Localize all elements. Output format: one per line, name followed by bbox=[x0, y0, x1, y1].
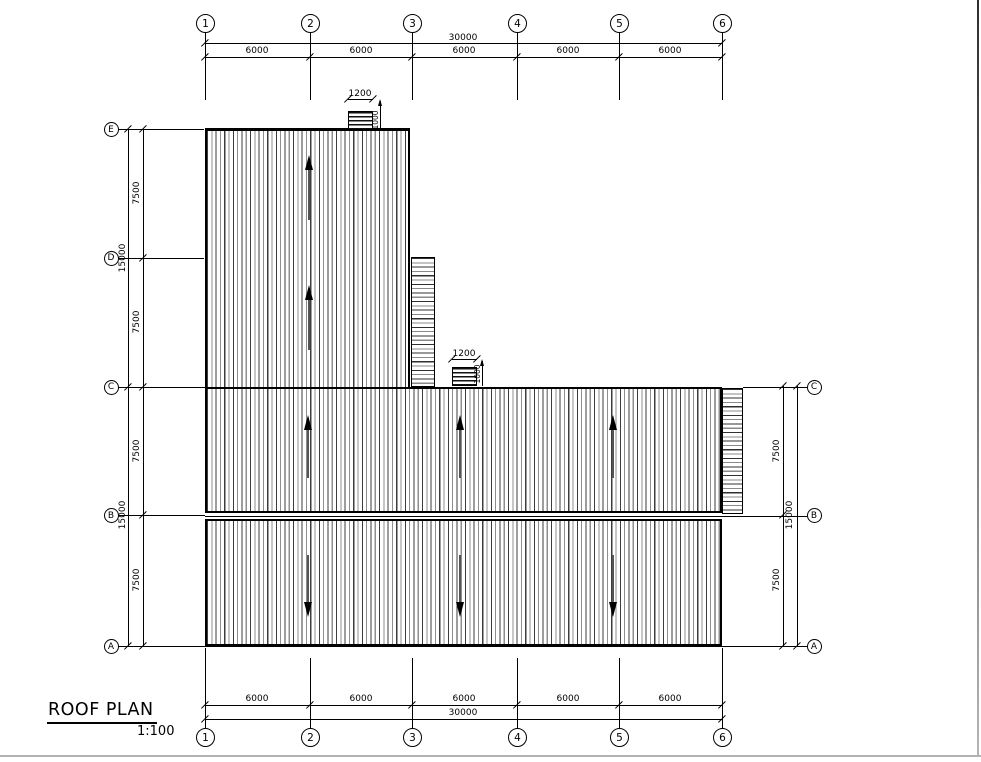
grid-label: 3 bbox=[409, 18, 416, 30]
grid-bubble-column: 3 bbox=[403, 728, 422, 747]
dim-text: 15000 bbox=[785, 501, 795, 530]
grid-bubble-column: 2 bbox=[301, 14, 320, 33]
dimension-line bbox=[205, 43, 722, 44]
slope-arrow-up bbox=[304, 285, 314, 350]
vent-dim-height: 1000 bbox=[473, 364, 483, 383]
ridge-line bbox=[205, 516, 722, 517]
dim-text: 6000 bbox=[453, 46, 476, 56]
dimension-line bbox=[128, 129, 129, 647]
grid-line bbox=[118, 258, 204, 259]
grid-line bbox=[118, 646, 205, 647]
dim-text: 6000 bbox=[557, 46, 580, 56]
grid-label: B bbox=[108, 511, 114, 521]
grid-bubble-row: C bbox=[104, 380, 119, 395]
dim-text: 6000 bbox=[350, 46, 373, 56]
grid-line bbox=[517, 658, 518, 728]
grid-label: 6 bbox=[719, 732, 726, 744]
grid-line bbox=[310, 658, 311, 728]
grid-line bbox=[118, 129, 204, 130]
slope-arrow-up bbox=[304, 155, 314, 220]
window-edge bbox=[0, 755, 981, 757]
dimension-line bbox=[797, 386, 798, 646]
dim-text: 6000 bbox=[659, 46, 682, 56]
roof-plan-drawing: 1200 1000 1200 1000 30000 6000 6000 6000… bbox=[0, 0, 981, 762]
dim-text: 6000 bbox=[350, 694, 373, 704]
grid-bubble-column: 1 bbox=[196, 14, 215, 33]
dim-text: 15000 bbox=[118, 501, 128, 530]
grid-label: A bbox=[108, 642, 114, 652]
grid-label: D bbox=[108, 253, 115, 263]
vent-dim-height: 1000 bbox=[371, 110, 381, 129]
dim-text: 6000 bbox=[453, 694, 476, 704]
grid-label: 2 bbox=[307, 18, 314, 30]
grid-bubble-column: 1 bbox=[196, 728, 215, 747]
dim-text: 7500 bbox=[132, 182, 142, 205]
grid-bubble-row: B bbox=[807, 508, 822, 523]
slope-arrow-down bbox=[608, 555, 618, 617]
vent-dim-width: 1200 bbox=[453, 349, 476, 359]
grid-label: B bbox=[811, 511, 817, 521]
dimension-line bbox=[205, 705, 722, 706]
dim-text: 7500 bbox=[772, 440, 782, 463]
dim-text: 7500 bbox=[132, 569, 142, 592]
dim-text: 6000 bbox=[246, 46, 269, 56]
grid-label: C bbox=[811, 382, 817, 392]
grid-label: 6 bbox=[719, 18, 726, 30]
grid-bubble-row: C bbox=[807, 380, 822, 395]
grid-bubble-column: 2 bbox=[301, 728, 320, 747]
grid-bubble-column: 5 bbox=[610, 14, 629, 33]
upper-roof-side-canopy bbox=[411, 257, 435, 387]
grid-label: 5 bbox=[616, 732, 623, 744]
dimension-line bbox=[783, 386, 784, 646]
grid-bubble-column: 5 bbox=[610, 728, 629, 747]
slope-arrow-down bbox=[303, 555, 313, 617]
dimension-line bbox=[205, 719, 722, 720]
grid-label: 5 bbox=[616, 18, 623, 30]
window-edge bbox=[977, 0, 979, 757]
grid-label: 3 bbox=[409, 732, 416, 744]
grid-bubble-column: 3 bbox=[403, 14, 422, 33]
grid-label: 2 bbox=[307, 732, 314, 744]
grid-bubble-column: 6 bbox=[713, 728, 732, 747]
dim-text: 6000 bbox=[659, 694, 682, 704]
grid-bubble-column: 4 bbox=[508, 14, 527, 33]
dim-text: 15000 bbox=[118, 244, 128, 273]
drawing-scale: 1:100 bbox=[137, 724, 174, 739]
dim-text: 30000 bbox=[449, 33, 478, 43]
dimension-line bbox=[205, 57, 722, 58]
grid-label: C bbox=[108, 382, 114, 392]
dim-text: 30000 bbox=[449, 708, 478, 718]
dimension-line bbox=[143, 129, 144, 647]
grid-label: 1 bbox=[202, 732, 209, 744]
dim-text: 6000 bbox=[557, 694, 580, 704]
grid-bubble-row: D bbox=[104, 251, 119, 266]
drawing-title: ROOF PLAN bbox=[47, 700, 157, 724]
lower-roof-side-canopy bbox=[722, 388, 743, 514]
grid-line bbox=[118, 387, 205, 388]
grid-bubble-column: 4 bbox=[508, 728, 527, 747]
dim-text: 7500 bbox=[772, 569, 782, 592]
dim-text: 6000 bbox=[246, 694, 269, 704]
grid-label: 4 bbox=[514, 18, 521, 30]
grid-bubble-row: B bbox=[104, 508, 119, 523]
dim-text: 7500 bbox=[132, 311, 142, 334]
grid-line bbox=[412, 658, 413, 728]
slope-arrow-up bbox=[455, 415, 465, 478]
slope-arrow-down bbox=[455, 555, 465, 617]
slope-arrow-up bbox=[303, 415, 313, 478]
vent-dim-width: 1200 bbox=[349, 89, 372, 99]
dim-text: 7500 bbox=[132, 440, 142, 463]
grid-bubble-column: 6 bbox=[713, 14, 732, 33]
grid-label: A bbox=[811, 642, 817, 652]
grid-line bbox=[118, 515, 205, 516]
grid-label: 4 bbox=[514, 732, 521, 744]
grid-bubble-row: A bbox=[807, 639, 822, 654]
roof-vent bbox=[348, 111, 373, 130]
arrowhead-icon bbox=[378, 99, 382, 106]
grid-bubble-row: E bbox=[104, 122, 119, 137]
grid-label: E bbox=[108, 125, 114, 135]
grid-bubble-row: A bbox=[104, 639, 119, 654]
grid-line bbox=[619, 658, 620, 728]
grid-label: 1 bbox=[202, 18, 209, 30]
slope-arrow-up bbox=[608, 415, 618, 478]
